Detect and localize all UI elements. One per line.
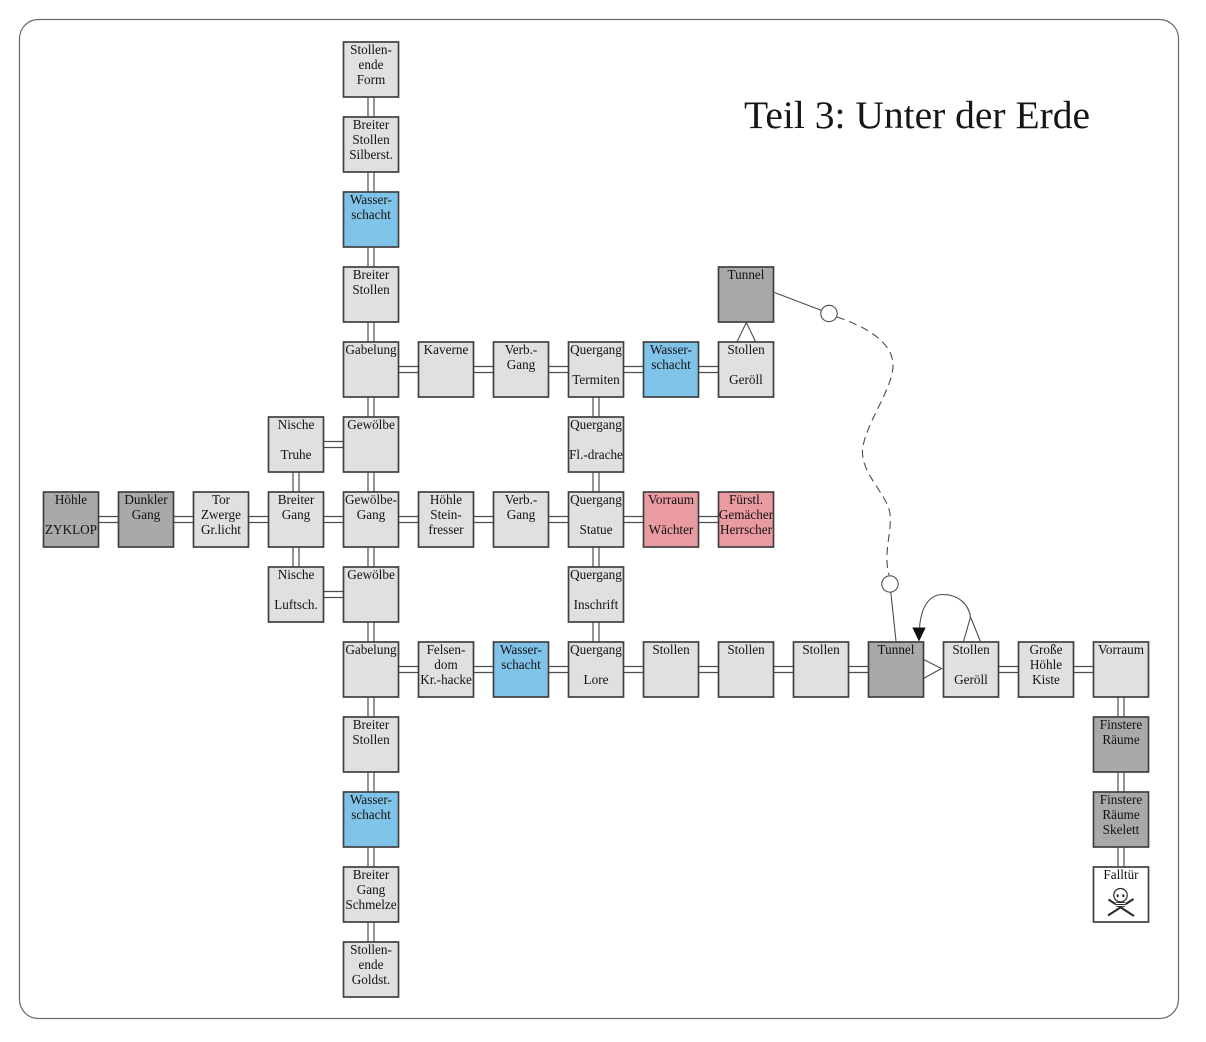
svg-text:Teil 3: Unter der Erde: Teil 3: Unter der Erde <box>744 93 1090 137</box>
svg-text:Breiter: Breiter <box>353 267 390 282</box>
svg-text:Form: Form <box>357 72 386 87</box>
svg-text:Felsen-: Felsen- <box>427 642 466 657</box>
svg-text:Luftsch.: Luftsch. <box>274 597 318 612</box>
svg-text:Gang: Gang <box>507 357 536 372</box>
svg-text:Geröll: Geröll <box>954 672 988 687</box>
svg-text:Gemächer: Gemächer <box>719 507 774 522</box>
svg-text:Stollen: Stollen <box>352 282 390 297</box>
svg-text:schacht: schacht <box>501 657 541 672</box>
svg-text:Gang: Gang <box>357 882 386 897</box>
svg-text:Vorraum: Vorraum <box>1098 642 1145 657</box>
svg-text:Räume: Räume <box>1102 732 1140 747</box>
svg-text:Stollen: Stollen <box>727 642 765 657</box>
svg-text:Gabelung: Gabelung <box>345 642 397 657</box>
svg-text:Geröll: Geröll <box>729 372 763 387</box>
svg-text:Gang: Gang <box>357 507 386 522</box>
svg-text:Herrscher: Herrscher <box>720 522 773 537</box>
svg-text:Termiten: Termiten <box>572 372 620 387</box>
svg-text:Tor: Tor <box>212 492 231 507</box>
svg-text:Gang: Gang <box>507 507 536 522</box>
svg-text:Stollen: Stollen <box>952 642 990 657</box>
svg-text:Quergang: Quergang <box>570 342 622 357</box>
svg-text:Wasser-: Wasser- <box>350 792 392 807</box>
svg-text:Gang: Gang <box>282 507 311 522</box>
svg-text:Stollen: Stollen <box>727 342 765 357</box>
svg-text:Höhle: Höhle <box>430 492 462 507</box>
svg-text:Tunnel: Tunnel <box>878 642 915 657</box>
svg-text:Stollen: Stollen <box>802 642 840 657</box>
svg-text:Wasser-: Wasser- <box>650 342 692 357</box>
svg-text:schacht: schacht <box>351 207 391 222</box>
svg-text:Finstere: Finstere <box>1100 792 1143 807</box>
svg-text:Zwerge: Zwerge <box>201 507 241 522</box>
svg-text:Kiste: Kiste <box>1032 672 1060 687</box>
svg-text:Verb.-: Verb.- <box>505 342 538 357</box>
svg-text:Stollen: Stollen <box>652 642 690 657</box>
svg-text:ZYKLOP: ZYKLOP <box>45 522 97 537</box>
svg-text:Breiter: Breiter <box>353 117 390 132</box>
svg-text:Skelett: Skelett <box>1103 822 1140 837</box>
svg-text:Stollen-: Stollen- <box>350 42 392 57</box>
svg-text:Vorraum: Vorraum <box>648 492 695 507</box>
svg-text:Gabelung: Gabelung <box>345 342 397 357</box>
svg-text:Tunnel: Tunnel <box>728 267 765 282</box>
svg-text:Gewölbe: Gewölbe <box>347 417 395 432</box>
svg-text:Kr.-hacke: Kr.-hacke <box>420 672 472 687</box>
svg-text:Gang: Gang <box>132 507 161 522</box>
svg-text:Stollen: Stollen <box>352 732 390 747</box>
svg-text:Quergang: Quergang <box>570 567 622 582</box>
svg-text:Truhe: Truhe <box>280 447 311 462</box>
svg-text:fresser: fresser <box>428 522 464 537</box>
svg-text:Breiter: Breiter <box>278 492 315 507</box>
svg-text:Fürstl.: Fürstl. <box>729 492 763 507</box>
svg-text:Wasser-: Wasser- <box>500 642 542 657</box>
svg-text:Statue: Statue <box>580 522 613 537</box>
svg-text:Fl.-drache: Fl.-drache <box>569 447 623 462</box>
svg-text:Quergang: Quergang <box>570 417 622 432</box>
svg-text:Silberst.: Silberst. <box>349 147 393 162</box>
svg-text:Große: Große <box>1030 642 1063 657</box>
svg-text:Räume: Räume <box>1102 807 1140 822</box>
svg-text:Nische: Nische <box>278 567 315 582</box>
svg-text:Goldst.: Goldst. <box>352 972 390 987</box>
svg-text:Stollen: Stollen <box>352 132 390 147</box>
svg-text:Dunkler: Dunkler <box>124 492 168 507</box>
svg-text:Wasser-: Wasser- <box>350 192 392 207</box>
svg-text:Breiter: Breiter <box>353 867 390 882</box>
svg-text:Falltür: Falltür <box>1103 867 1139 882</box>
svg-text:Lore: Lore <box>584 672 609 687</box>
svg-text:Gewölbe-: Gewölbe- <box>345 492 397 507</box>
svg-text:Quergang: Quergang <box>570 642 622 657</box>
svg-text:Kaverne: Kaverne <box>424 342 469 357</box>
svg-text:Wächter: Wächter <box>649 522 694 537</box>
svg-text:Nische: Nische <box>278 417 315 432</box>
svg-text:Breiter: Breiter <box>353 717 390 732</box>
svg-text:dom: dom <box>434 657 458 672</box>
svg-text:Stollen-: Stollen- <box>350 942 392 957</box>
svg-text:Inschrift: Inschrift <box>574 597 619 612</box>
svg-text:schacht: schacht <box>351 807 391 822</box>
svg-text:Gr.licht: Gr.licht <box>201 522 241 537</box>
svg-text:schacht: schacht <box>651 357 691 372</box>
svg-text:Gewölbe: Gewölbe <box>347 567 395 582</box>
svg-text:ende: ende <box>359 57 384 72</box>
svg-text:Höhle: Höhle <box>55 492 87 507</box>
svg-text:Höhle: Höhle <box>1030 657 1062 672</box>
svg-text:Quergang: Quergang <box>570 492 622 507</box>
svg-text:Schmelze: Schmelze <box>345 897 396 912</box>
svg-text:ende: ende <box>359 957 384 972</box>
svg-text:Finstere: Finstere <box>1100 717 1143 732</box>
svg-text:Stein-: Stein- <box>430 507 462 522</box>
svg-text:Verb.-: Verb.- <box>505 492 538 507</box>
